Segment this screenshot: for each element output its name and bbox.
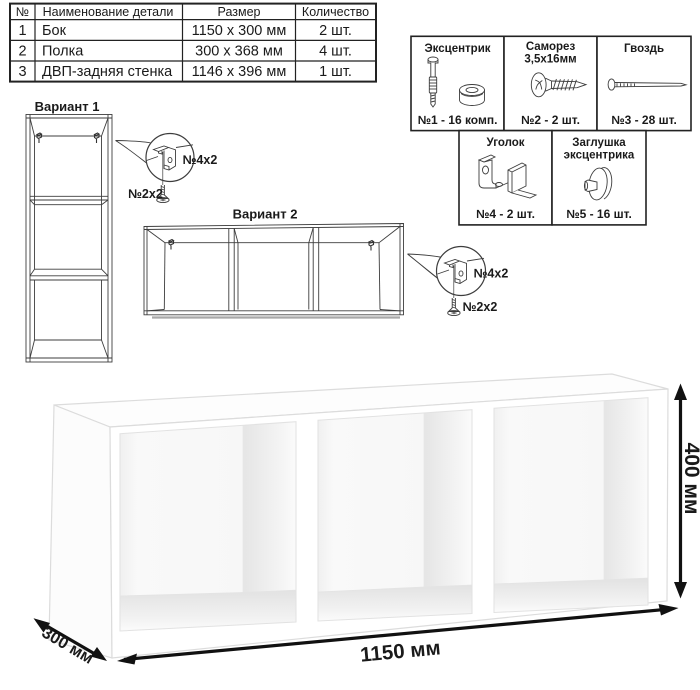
svg-text:№1 - 16 комп.: №1 - 16 комп. xyxy=(418,113,498,127)
svg-text:Саморез: Саморез xyxy=(526,41,576,53)
svg-text:3,5х16мм: 3,5х16мм xyxy=(524,54,576,66)
svg-text:1146 x 396 мм: 1146 x 396 мм xyxy=(192,64,287,80)
svg-text:Уголок: Уголок xyxy=(486,137,524,149)
svg-text:№5 - 16 шт.: №5 - 16 шт. xyxy=(566,207,632,221)
svg-text:2: 2 xyxy=(18,44,26,60)
svg-text:400 мм: 400 мм xyxy=(680,443,700,515)
svg-text:1 шт.: 1 шт. xyxy=(319,64,352,80)
svg-text:Вариант 1: Вариант 1 xyxy=(35,99,100,114)
svg-text:№2 - 2 шт.: №2 - 2 шт. xyxy=(521,113,580,127)
svg-text:№2х2: №2х2 xyxy=(463,300,498,314)
svg-text:Количество: Количество xyxy=(302,5,369,19)
svg-text:ДВП-задняя стенка: ДВП-задняя стенка xyxy=(42,64,173,80)
svg-text:№: № xyxy=(16,5,29,19)
svg-text:№4 - 2 шт.: №4 - 2 шт. xyxy=(476,207,535,221)
svg-text:1150 x 300 мм: 1150 x 300 мм xyxy=(192,23,287,39)
svg-text:Заглушка: Заглушка xyxy=(572,137,626,149)
svg-text:3: 3 xyxy=(18,64,26,80)
svg-text:№3 - 28 шт.: №3 - 28 шт. xyxy=(611,113,677,127)
svg-text:Размер: Размер xyxy=(218,5,261,19)
svg-text:№2х2: №2х2 xyxy=(128,187,163,201)
svg-text:1: 1 xyxy=(18,23,26,39)
svg-text:Бок: Бок xyxy=(42,23,67,39)
svg-text:300 x 368 мм: 300 x 368 мм xyxy=(195,44,283,60)
svg-text:№4х2: №4х2 xyxy=(183,153,218,167)
svg-text:эксцентрика: эксцентрика xyxy=(564,150,635,162)
svg-text:№4х2: №4х2 xyxy=(474,267,509,281)
svg-text:Вариант 2: Вариант 2 xyxy=(233,207,298,222)
svg-text:4 шт.: 4 шт. xyxy=(319,44,352,60)
svg-text:2 шт.: 2 шт. xyxy=(319,23,352,39)
svg-text:Гвоздь: Гвоздь xyxy=(624,43,664,55)
svg-text:Наименование детали: Наименование детали xyxy=(43,5,174,19)
svg-text:Полка: Полка xyxy=(42,44,84,60)
svg-text:Эксцентрик: Эксцентрик xyxy=(424,43,490,55)
